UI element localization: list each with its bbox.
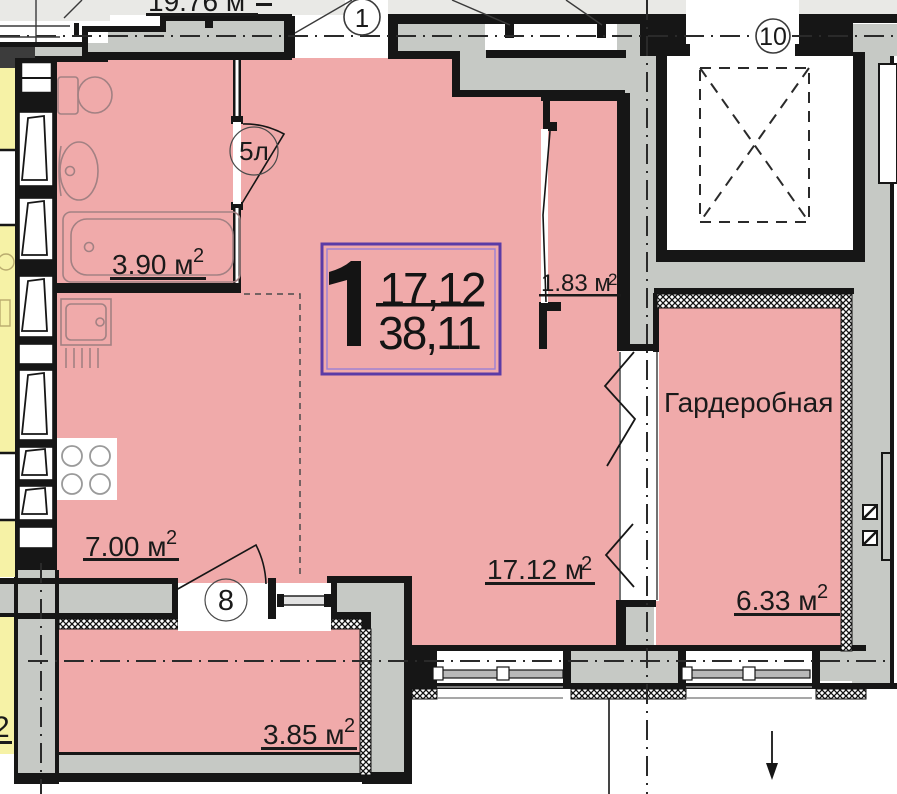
svg-text:5л: 5л <box>239 136 269 166</box>
svg-text:2: 2 <box>608 270 617 289</box>
svg-text:3.85 м: 3.85 м <box>263 719 345 750</box>
svg-text:2: 2 <box>817 581 828 603</box>
svg-text:1: 1 <box>355 3 369 33</box>
svg-text:8: 8 <box>218 585 234 617</box>
svg-text:3.90 м: 3.90 м <box>112 249 194 280</box>
svg-text:2: 2 <box>166 527 177 549</box>
svg-text:2: 2 <box>344 715 355 737</box>
svg-text:17.12 м: 17.12 м <box>487 554 584 585</box>
svg-text:1.83 м: 1.83 м <box>541 270 611 297</box>
svg-text:2: 2 <box>193 245 204 267</box>
svg-text:7.00 м: 7.00 м <box>85 531 167 562</box>
svg-text:2: 2 <box>581 553 592 575</box>
svg-text:2: 2 <box>0 711 10 744</box>
svg-text:6.33 м: 6.33 м <box>736 585 818 616</box>
svg-text:Гардеробная: Гардеробная <box>664 387 833 418</box>
svg-text:10: 10 <box>759 23 787 51</box>
svg-text:38,11: 38,11 <box>378 307 480 359</box>
